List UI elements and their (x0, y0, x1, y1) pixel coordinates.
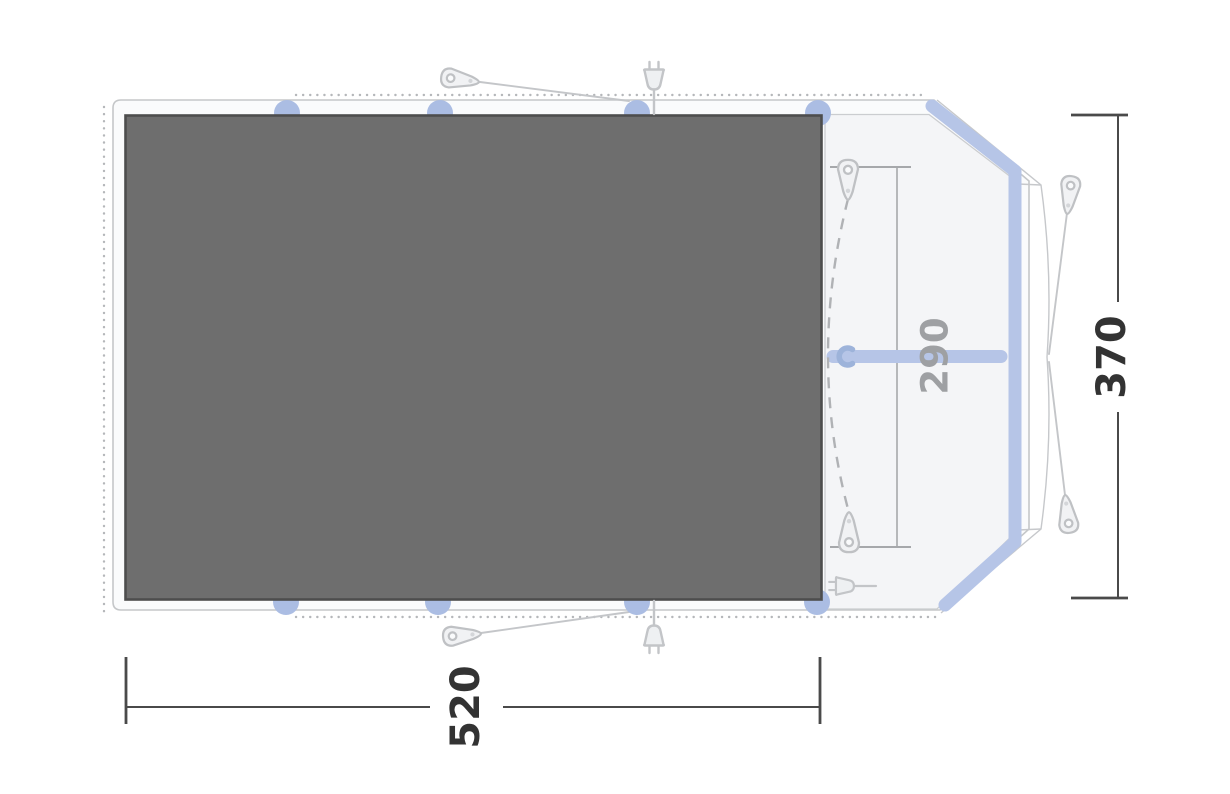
tent-peg-icon (1056, 494, 1079, 534)
tent-floorplan-diagram: 290 520 370 (0, 0, 1230, 794)
tent-peg-icon (440, 67, 480, 91)
tent-peg-icon (1058, 175, 1081, 215)
floorplan-canvas: 290 520 370 (0, 0, 1230, 794)
groundsheet (126, 116, 822, 600)
dimension-label-520: 520 (443, 665, 489, 749)
dimension-label-290: 290 (914, 317, 957, 394)
dimension-label-370: 370 (1089, 315, 1135, 399)
tent-peg-icon (442, 624, 482, 646)
